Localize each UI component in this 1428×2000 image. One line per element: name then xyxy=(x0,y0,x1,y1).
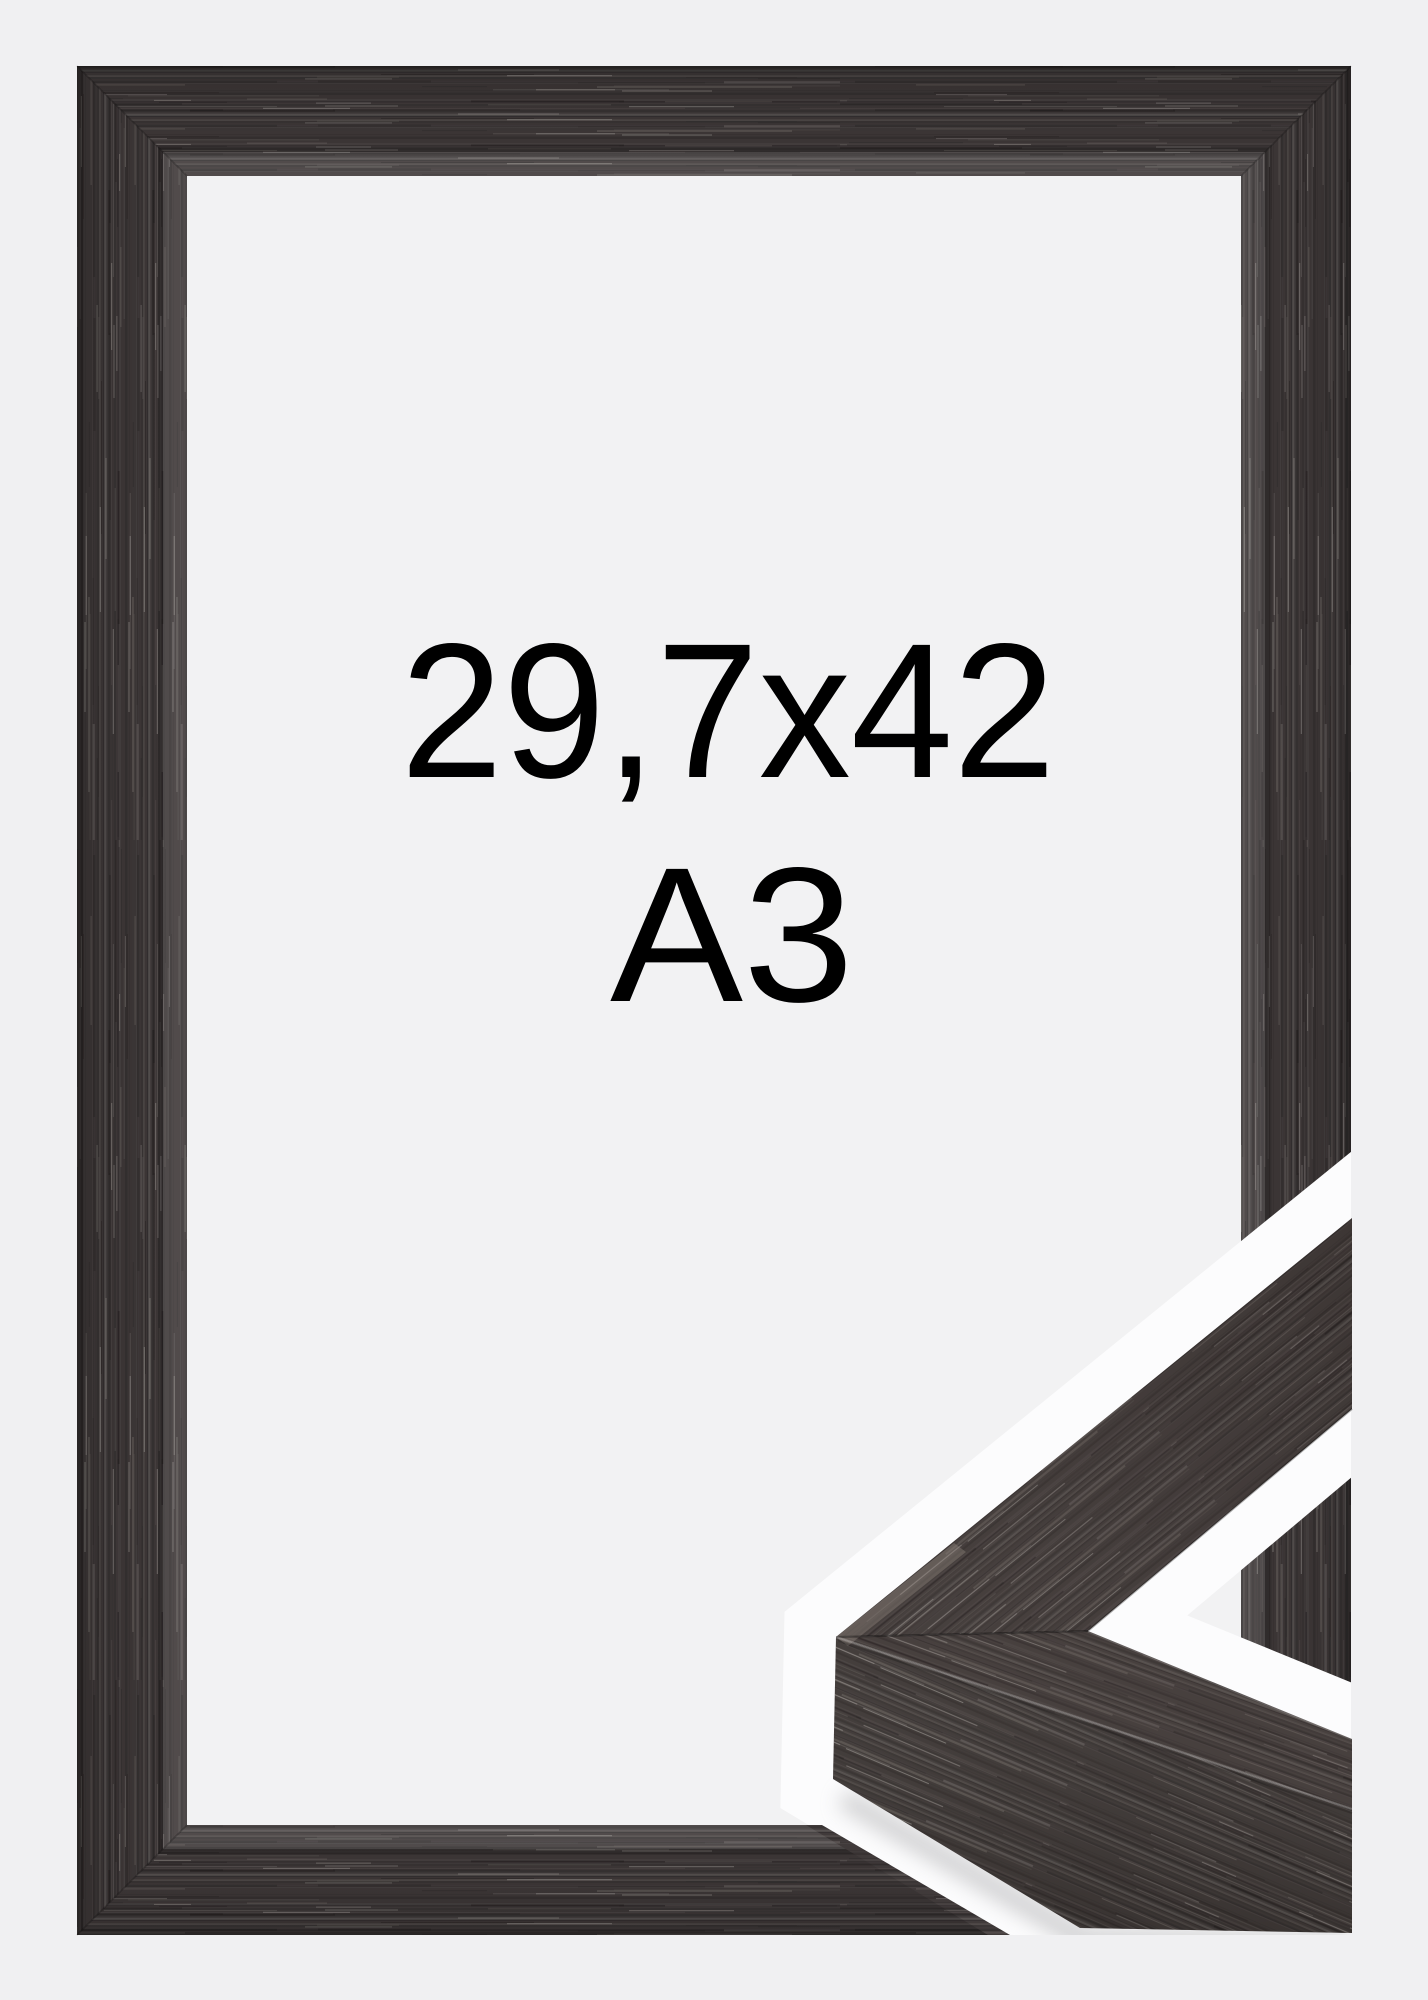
svg-text:A3: A3 xyxy=(610,827,854,1042)
svg-text:29,7x42: 29,7x42 xyxy=(401,603,1056,818)
